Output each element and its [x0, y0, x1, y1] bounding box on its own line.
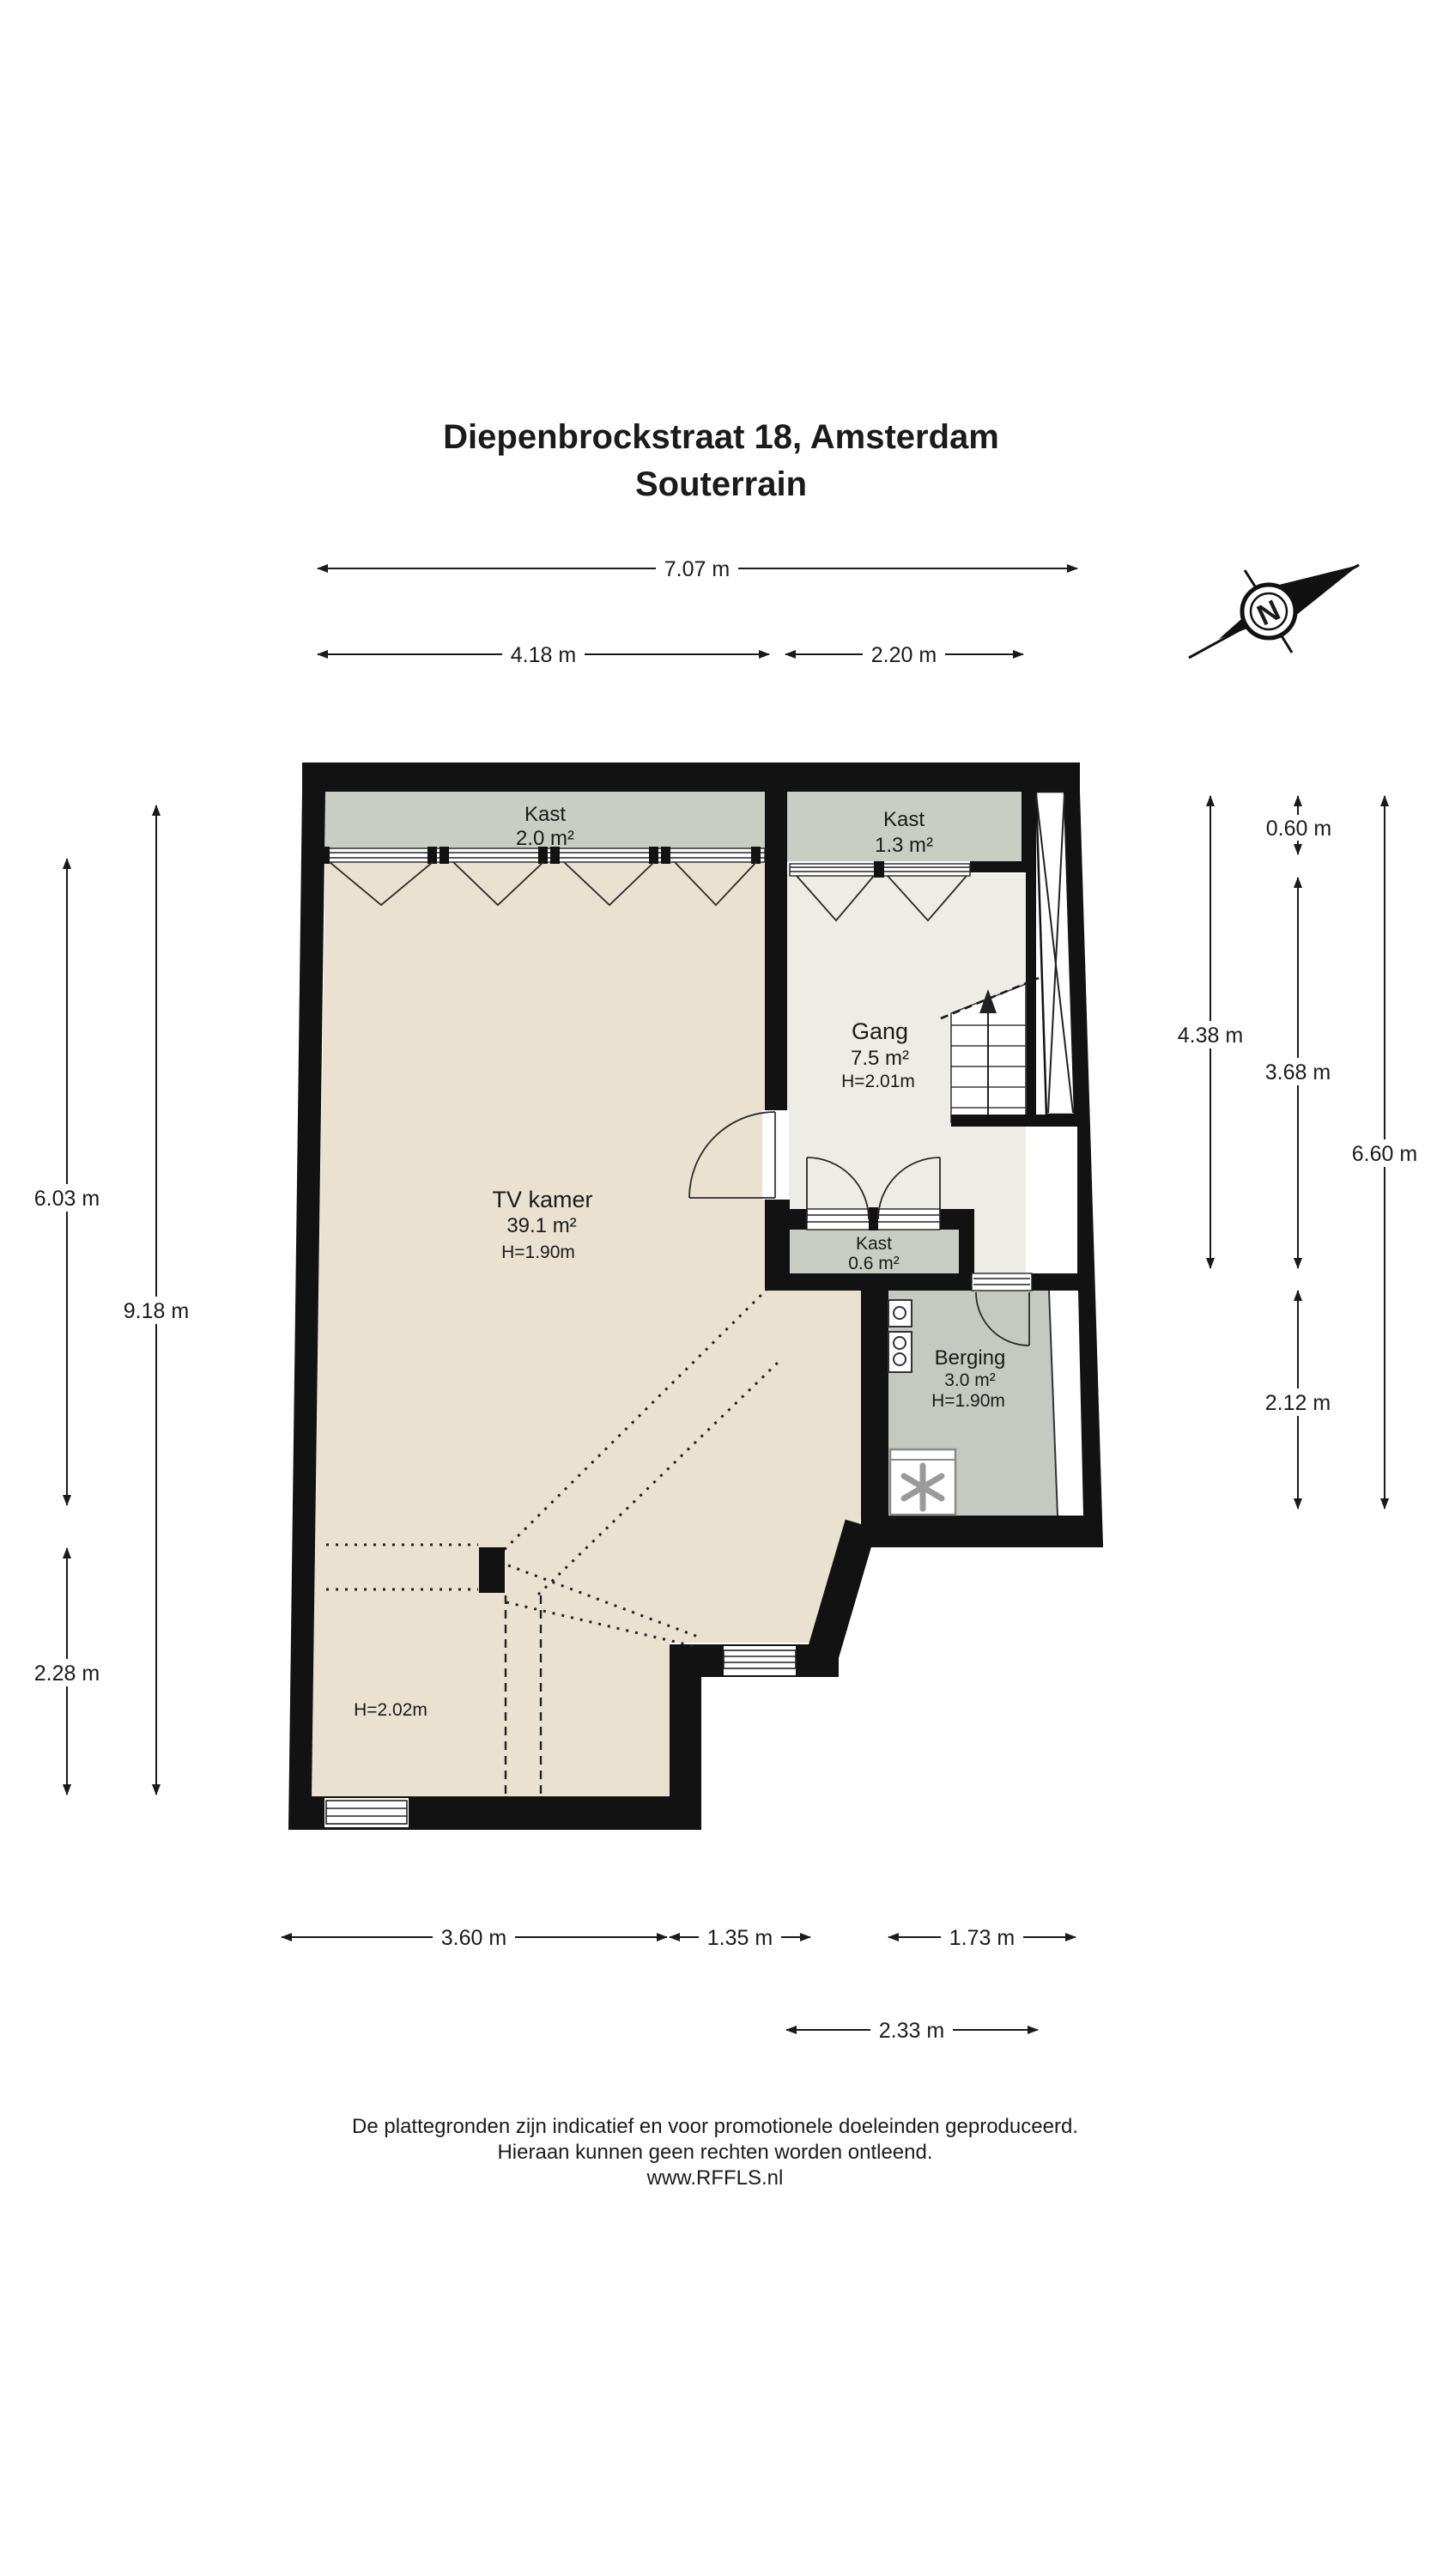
svg-text:2.12 m: 2.12 m: [1265, 1391, 1331, 1415]
svg-text:6.03 m: 6.03 m: [34, 1187, 100, 1211]
svg-text:1.73 m: 1.73 m: [949, 1926, 1015, 1950]
label-berging-area: 3.0 m²: [944, 1370, 996, 1390]
wall-top: [302, 762, 1080, 792]
svg-text:0.60 m: 0.60 m: [1266, 817, 1331, 841]
svg-text:4.18 m: 4.18 m: [511, 643, 576, 667]
label-tvkamer-area: 39.1 m²: [506, 1214, 576, 1237]
dim-right-438: 4.38 m: [1169, 796, 1252, 1268]
dim-bottom-173: 1.73 m: [888, 1923, 1076, 1951]
wall-kast06-post-right: [940, 1209, 974, 1230]
dim-bottom-233: 2.33 m: [786, 2016, 1038, 2044]
label-kast-small-name: Kast: [856, 1234, 892, 1254]
dim-right-660: 6.60 m: [1343, 796, 1426, 1509]
label-gang-height: H=2.01m: [841, 1072, 915, 1091]
svg-text:1.35 m: 1.35 m: [707, 1926, 773, 1950]
svg-text:2.28 m: 2.28 m: [34, 1662, 100, 1686]
wall-gang-divider: [765, 792, 787, 1110]
dim-bottom-360: 3.60 m: [282, 1923, 667, 1951]
wall-kast06-post-left: [790, 1209, 807, 1230]
dim-right-368: 3.68 m: [1257, 878, 1339, 1268]
void-below: [1043, 1127, 1077, 1273]
window-step: [724, 1646, 796, 1675]
dim-left-918: 9.18 m: [115, 805, 197, 1795]
svg-text:2.33 m: 2.33 m: [879, 2019, 944, 2043]
dim-left-228: 2.28 m: [26, 1548, 108, 1795]
compass-icon: N: [1189, 565, 1359, 658]
svg-text:4.38 m: 4.38 m: [1178, 1024, 1243, 1048]
title-floor: Souterrain: [635, 465, 807, 503]
footer-line-2: Hieraan kunnen geen rechten worden ontle…: [497, 2141, 932, 2164]
meter-cabinet-icon: [888, 1300, 912, 1372]
wall-gang-right: [1026, 872, 1036, 1115]
wall-kast13-right: [1022, 792, 1036, 861]
floor-plan-page: Diepenbrockstraat 18, Amsterdam Souterra…: [0, 0, 1449, 2576]
label-berging-height: H=1.90m: [931, 1391, 1005, 1411]
label-gang-name: Gang: [852, 1018, 908, 1044]
svg-text:6.60 m: 6.60 m: [1352, 1142, 1417, 1166]
title-address: Diepenbrockstraat 18, Amsterdam: [443, 418, 999, 456]
footer-website: www.RFFLS.nl: [646, 2166, 784, 2190]
label-tvkamer-name: TV kamer: [492, 1187, 592, 1212]
footer-disclaimer: De plattegronden zijn indicatief en voor…: [352, 2115, 1078, 2190]
dim-right-212: 2.12 m: [1257, 1291, 1339, 1509]
floor-plan-canvas: Diepenbrockstraat 18, Amsterdam Souterra…: [0, 0, 1449, 2576]
svg-text:3.60 m: 3.60 m: [441, 1926, 506, 1950]
label-kast-right-name: Kast: [883, 808, 925, 831]
footer-line-1: De plattegronden zijn indicatief en voor…: [352, 2115, 1078, 2138]
wall-kast13-bottom: [970, 861, 1036, 872]
wall-berging-left: [861, 1273, 888, 1517]
wall-kast06-right: [959, 1230, 974, 1273]
label-kast-small-area: 0.6 m²: [848, 1254, 900, 1273]
label-low-ceiling: H=2.02m: [354, 1700, 427, 1720]
wall-step-vertical: [670, 1644, 701, 1796]
dim-top-418: 4.18 m: [318, 641, 769, 668]
pillar: [479, 1547, 505, 1593]
dim-top-707: 7.07 m: [318, 555, 1077, 582]
svg-text:3.68 m: 3.68 m: [1265, 1060, 1331, 1084]
svg-text:9.18 m: 9.18 m: [124, 1299, 189, 1323]
window-bottom-left: [324, 1798, 409, 1827]
dim-right-060: 0.60 m: [1257, 796, 1343, 854]
label-kast-top-name: Kast: [524, 803, 566, 826]
label-tvkamer-height: H=1.90m: [501, 1242, 575, 1262]
dim-bottom-135: 1.35 m: [670, 1923, 810, 1951]
svg-text:2.20 m: 2.20 m: [871, 643, 937, 667]
svg-text:7.07 m: 7.07 m: [664, 557, 730, 581]
label-kast-right-area: 1.3 m²: [875, 834, 933, 857]
label-gang-area: 7.5 m²: [851, 1047, 909, 1070]
page-title: Diepenbrockstraat 18, Amsterdam Souterra…: [443, 418, 999, 503]
washing-machine-icon: [890, 1449, 955, 1515]
label-kast-top-area: 2.0 m²: [516, 827, 574, 850]
wall-berging-top-right: [1032, 1273, 1086, 1291]
wall-berging-bottom: [861, 1516, 1103, 1547]
wall-under-stairs: [951, 1115, 1082, 1127]
dim-left-603: 6.03 m: [26, 859, 108, 1505]
dim-top-220: 2.20 m: [785, 641, 1023, 668]
label-berging-name: Berging: [935, 1346, 1006, 1370]
